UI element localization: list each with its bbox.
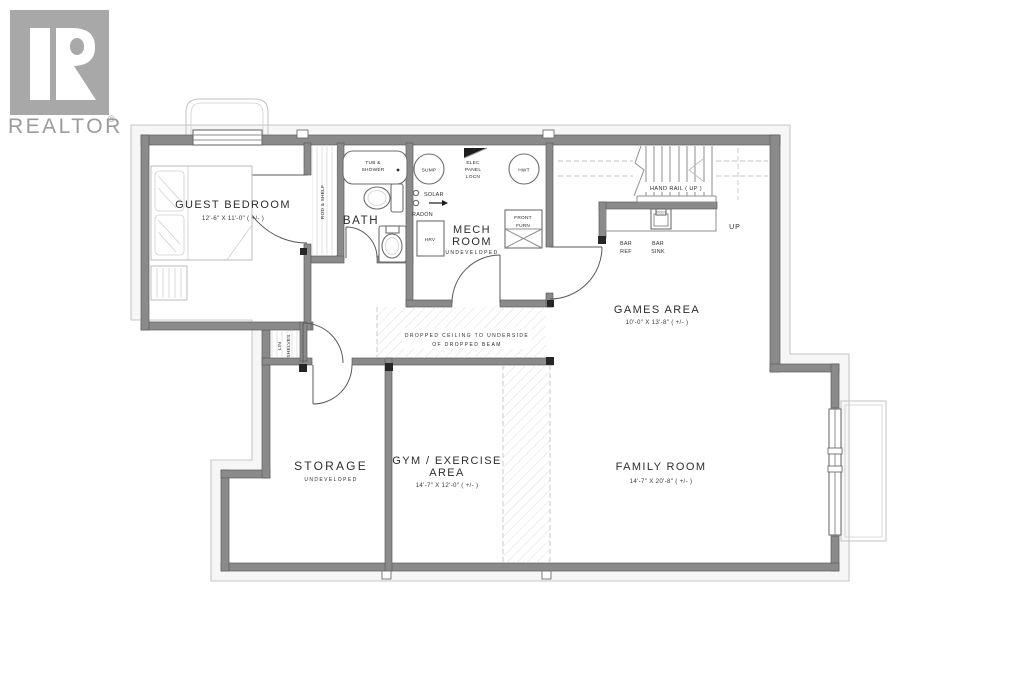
room-name: FAMILY ROOM	[616, 461, 707, 473]
bath-label: BATH	[343, 215, 379, 227]
handrail-label: HAND RAIL ( UP )	[650, 186, 702, 192]
bathtub-icon: TUB & SHOWER	[343, 151, 407, 184]
dresser-icon	[151, 266, 187, 300]
elec-label-1: ELEC	[466, 160, 480, 166]
stair-break-line	[634, 146, 644, 196]
dropped-ceiling-areas: DROPPED CEILING TO UNDERSIDE OF DROPPED …	[377, 307, 550, 563]
linen-label-2: SHELVES	[286, 334, 292, 357]
bar-sink-icon: MOEN	[651, 209, 671, 229]
dropped-ceiling-note-1: DROPPED CEILING TO UNDERSIDE	[405, 333, 529, 339]
solar-radon-roughin: SOLAR RADON	[412, 190, 448, 218]
furnace-label-2: FURN	[516, 223, 530, 229]
floor-plan-page: REALTOR ®	[0, 0, 1024, 684]
radon-arrow-icon	[442, 200, 448, 206]
bedroom-window	[193, 130, 262, 145]
mech-door-arc	[452, 255, 500, 303]
bed-icon	[151, 166, 252, 260]
up-label: UP	[729, 224, 741, 231]
room-dims: 12'-6" X 11'-0" ( +/- )	[202, 215, 264, 222]
gym-label: GYM / EXERCISE AREA 14'-7" X 12'-0" ( +/…	[392, 455, 501, 489]
room-name-2: ROOM	[452, 236, 492, 248]
rod-shelf-closet: ROD & SHELF	[312, 145, 337, 255]
handrail	[637, 196, 716, 202]
realtor-logo: REALTOR ®	[8, 10, 123, 138]
room-name: STORAGE	[294, 459, 368, 473]
sink-brand-label: MOEN	[656, 211, 666, 215]
hrv-label: HRV	[425, 237, 436, 243]
registered-mark: ®	[108, 114, 115, 124]
storage-label: STORAGE UNDEVELOPED	[294, 459, 368, 483]
furnace-label-1: FRONT	[514, 215, 532, 221]
room-status: UNDEVELOPED	[304, 477, 357, 483]
family-room-label: FAMILY ROOM 14'-7" X 20'-8" ( +/- )	[616, 461, 707, 485]
room-name-1: GYM / EXERCISE	[392, 455, 501, 467]
tub-label-2: SHOWER	[362, 167, 385, 173]
linen-closet: LIN SHELVES	[271, 331, 299, 358]
stair-direction-arrow-icon	[689, 159, 703, 181]
elec-label-3: LOCN	[466, 174, 480, 180]
bar-area: MOEN BAR REF BAR SINK	[606, 209, 716, 255]
elec-panel-icon: ELEC PANEL LOCN	[464, 148, 487, 180]
hwt-label: HWT	[518, 168, 530, 174]
room-status: UNDEVELOPED	[445, 250, 498, 256]
games-door-arc	[550, 247, 602, 299]
furnace-icon: FRONT FURN	[505, 210, 542, 248]
bar-ref-label-2: REF	[620, 249, 632, 255]
room-name-1: MECH	[453, 224, 491, 236]
bath-door-arc	[346, 227, 377, 258]
elec-label-2: PANEL	[465, 167, 482, 173]
family-room-window	[828, 409, 842, 535]
realtor-wordmark: REALTOR	[8, 115, 123, 138]
hrv-icon: HRV	[417, 221, 444, 256]
bar-sink-label-2: SINK	[651, 249, 665, 255]
pedestal-sink-icon	[379, 226, 406, 262]
toilet-icon	[364, 184, 403, 212]
bar-ref-label-1: BAR	[620, 241, 632, 247]
floor-plan-canvas: REALTOR ®	[0, 0, 1024, 684]
room-name: GAMES AREA	[614, 304, 700, 316]
dropped-ceiling-note-2: OF DROPPED BEAM	[432, 342, 502, 348]
solar-label: SOLAR	[424, 192, 444, 198]
games-area-label: GAMES AREA 10'-0" X 13'-8" ( +/- )	[614, 304, 700, 326]
sump-icon: SUMP	[414, 154, 444, 184]
radon-label: RADON	[412, 212, 433, 218]
room-name: GUEST BEDROOM	[175, 199, 291, 211]
rod-shelf-label: ROD & SHELF	[320, 185, 326, 219]
mech-room-label: MECH ROOM UNDEVELOPED	[445, 224, 498, 256]
hwt-icon: HWT	[509, 154, 539, 184]
tub-label-1: TUB &	[365, 160, 381, 166]
bar-sink-label-1: BAR	[652, 241, 664, 247]
storage-door-arc	[313, 365, 352, 404]
linen-label-1: LIN	[277, 342, 283, 350]
room-dims: 14'-7" X 20'-8" ( +/- )	[630, 478, 693, 485]
room-dims: 10'-0" X 13'-8" ( +/- )	[626, 319, 689, 326]
room-name-2: AREA	[429, 467, 465, 479]
sump-label: SUMP	[422, 168, 437, 174]
room-dims: 14'-7" X 12'-0" ( +/- )	[416, 482, 479, 489]
